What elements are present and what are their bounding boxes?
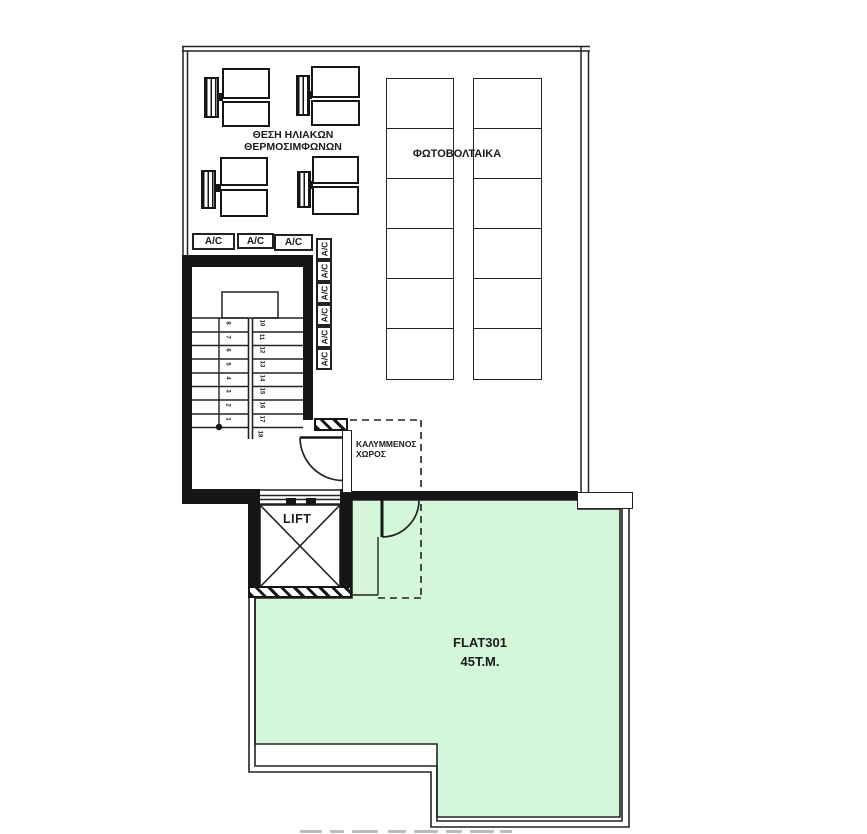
terrace-parapet-band (577, 492, 633, 509)
lift-wall-west (248, 489, 260, 598)
lift-wall-south-hatch (248, 586, 352, 598)
solar-tank-box (311, 100, 360, 126)
pv-array-column-2 (473, 78, 542, 380)
stair-handrail-dot (216, 424, 222, 430)
solar-area-label-line2: ΘΕΡΜΟΣΙΜΦΩΝΩΝ (230, 142, 356, 153)
pv-cell (474, 179, 541, 229)
ac-unit-label: A/C (319, 352, 329, 367)
solar-tank-box (220, 157, 268, 186)
ac-unit-label: A/C (319, 242, 329, 257)
solar-tank-box (311, 66, 360, 98)
solar-connector (307, 91, 312, 99)
pv-cell (474, 229, 541, 279)
stair-step-number: 11 (258, 334, 264, 340)
stair-step-number: 14 (258, 375, 264, 382)
ac-unit: A/C (316, 260, 332, 282)
pv-cell (387, 179, 453, 229)
solar-collector-panel (297, 171, 311, 208)
ac-unit: A/C (237, 233, 274, 249)
stair-step-number: 4 (225, 376, 231, 379)
ac-unit: A/C (274, 234, 313, 251)
ac-unit-label: A/C (319, 308, 329, 323)
stair-step-number: 3 (225, 389, 231, 392)
pv-cell (474, 279, 541, 329)
covered-space-label-line1: ΚΑΛΥΜΜΕΝΟΣ (356, 440, 417, 449)
pv-cell (387, 329, 453, 379)
ac-unit: A/C (316, 348, 332, 370)
stair-step-number: 16 (258, 402, 264, 409)
stair-landing-outline (222, 292, 278, 318)
stair-core-wall-west (182, 255, 192, 504)
solar-tank-box (222, 101, 270, 127)
stair-step-number: 18 (256, 431, 262, 438)
stair-step-number: 8 (225, 321, 231, 324)
ac-unit-label: A/C (319, 264, 329, 279)
ac-unit: A/C (316, 238, 332, 260)
lift-door-tick-right (306, 498, 316, 505)
solar-collector-panel (201, 170, 216, 209)
solar-connector (308, 181, 313, 189)
ac-unit-label: A/C (319, 286, 329, 301)
lift-label: LIFT (283, 513, 311, 526)
ac-unit-label: A/C (247, 236, 264, 247)
stair-step-number: 15 (258, 388, 264, 395)
photovoltaics-label: ΦΩΤΟΒΟΛΤΑΙΚΑ (403, 149, 511, 160)
solar-collector-panel (204, 77, 219, 118)
solar-connector (218, 93, 223, 101)
solar-tank-box (220, 189, 268, 217)
stair-step-number: 10 (258, 320, 264, 327)
ac-unit: A/C (192, 233, 235, 250)
solar-tank-box (222, 68, 270, 99)
landing-east-wall (342, 430, 352, 493)
pv-array-column-1 (386, 78, 454, 380)
ac-unit-label: A/C (319, 330, 329, 345)
ac-unit: A/C (316, 282, 332, 304)
covered-space-label-line2: ΧΩΡΟΣ (356, 450, 386, 459)
pv-cell (387, 229, 453, 279)
stair-step-number: 5 (225, 362, 231, 365)
stair-core-wall-north (182, 255, 313, 267)
pv-cell (474, 329, 541, 379)
pv-cell (474, 79, 541, 129)
ac-unit-label: A/C (205, 236, 222, 247)
stair-treads-left (192, 318, 248, 428)
lift-door-tick-left (286, 498, 296, 505)
solar-tank-box (312, 186, 359, 215)
stair-step-number: 17 (258, 416, 264, 423)
landing-door-arc (300, 438, 343, 481)
pv-cell (387, 79, 453, 129)
ac-unit: A/C (316, 326, 332, 348)
stair-step-number: 7 (225, 335, 231, 338)
stair-step-number: 1 (225, 417, 231, 420)
stair-step-number: 12 (258, 347, 264, 354)
ac-unit: A/C (316, 304, 332, 326)
solar-tank-box (312, 156, 359, 184)
pv-cell (387, 279, 453, 329)
stair-step-number: 2 (225, 403, 231, 406)
stair-core-wall-east (303, 255, 313, 420)
flat-area-label: 45T.M. (430, 655, 530, 668)
solar-area-label-line1: ΘΕΣΗ ΗΛΙΑΚΩΝ (230, 130, 356, 141)
roof-floor-plan: ΘΕΣΗ ΗΛΙΑΚΩΝ ΘΕΡΜΟΣΙΜΦΩΝΩΝ ΦΩΤΟΒΟΛΤΑΙΚΑ … (0, 0, 867, 834)
lift-wall-east (340, 489, 352, 598)
stair-step-number: 13 (258, 361, 264, 368)
stair-step-number: 6 (225, 348, 231, 351)
terrace-north-wall (352, 491, 578, 500)
flat-name-label: FLAT301 (430, 636, 530, 649)
ac-unit-label: A/C (285, 237, 302, 248)
solar-connector (215, 184, 221, 192)
